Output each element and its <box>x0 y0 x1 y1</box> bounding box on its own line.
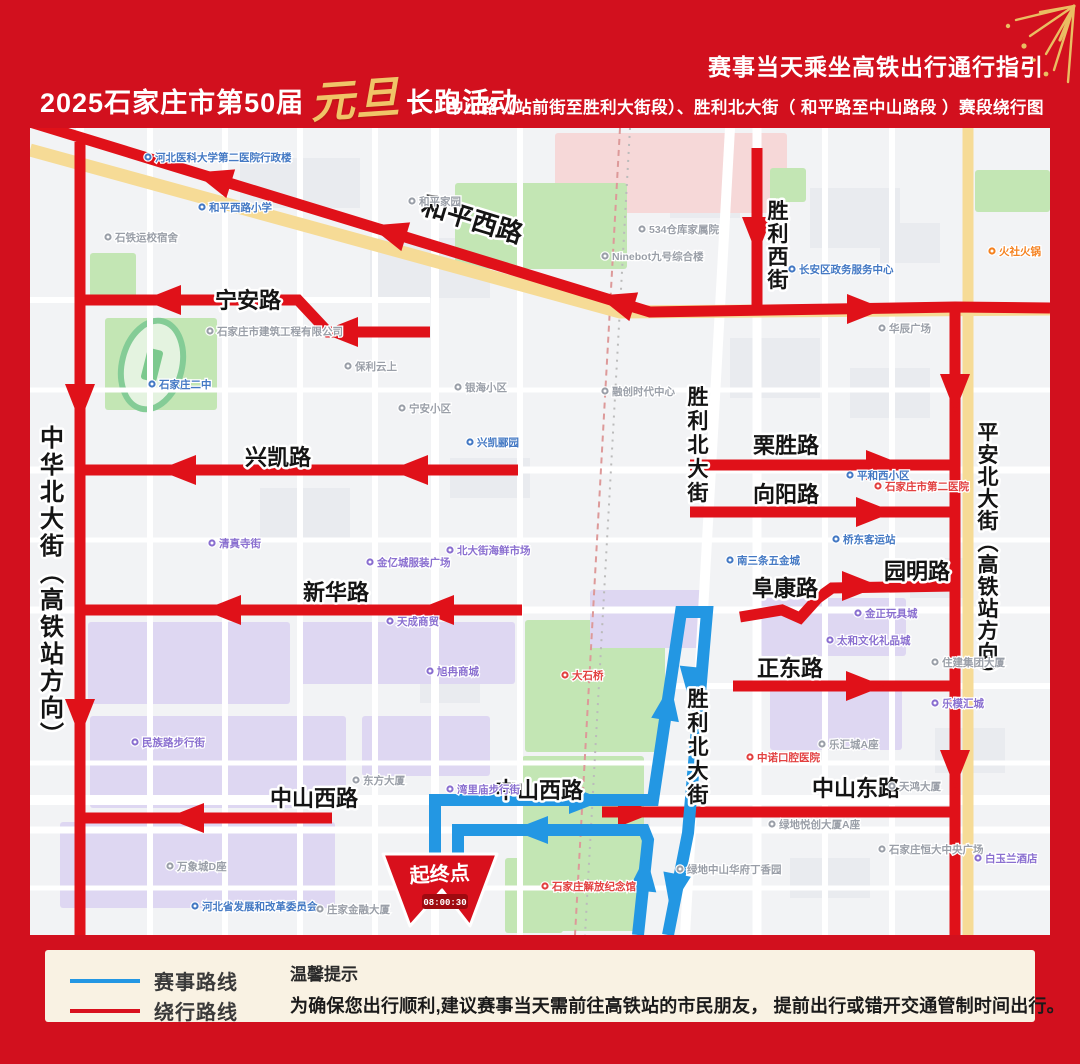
poi-pin-dot <box>209 330 212 333</box>
poi: 庄家金融大厦 <box>316 903 391 916</box>
poi-label: 火社火锅 <box>999 245 1041 258</box>
poi: 长安区政务服务中心 <box>788 263 894 276</box>
poi-pin-dot <box>201 206 204 209</box>
street-label: 胜利西街 <box>767 200 789 292</box>
poi-pin-dot <box>849 474 852 477</box>
poi-label: 天鸿大厦 <box>899 780 941 793</box>
guide-subtitle: 中山路（站前街至胜利大街段）、胜利北大街（ 和平路至中山路段 ）赛段绕行图 <box>447 94 1044 118</box>
poi-pin-dot <box>829 639 832 642</box>
poi-label: 金正玩具城 <box>864 607 918 620</box>
poi-pin-dot <box>877 485 880 488</box>
poi: 绿地中山华府丁香园 <box>676 863 782 876</box>
poi-label: 长安区政务服务中心 <box>799 263 894 276</box>
poi: 绿地悦创大厦A座 <box>768 818 861 831</box>
poi-pin-dot <box>749 756 752 759</box>
poi-label: 石家庄二中 <box>158 378 212 391</box>
poi: 河北省发展和改革委员会 <box>191 900 318 913</box>
legend-detour-row: 绕行路线 <box>70 996 238 1025</box>
street-label: 向阳路 <box>753 482 820 507</box>
poi-label: 湾里庙步行街 <box>457 783 520 796</box>
poi-pin-dot <box>679 868 682 871</box>
street-label: 宁安路 <box>215 288 282 313</box>
street-label: 平安北大街︵高铁站方向︶ <box>977 422 999 687</box>
detour-route-label: 绕行路线 <box>154 996 238 1025</box>
city-block <box>260 488 350 538</box>
poi-label: 石铁运校宿舍 <box>114 231 178 244</box>
poi-pin-dot <box>729 559 732 562</box>
poi-label: 绿地悦创大厦A座 <box>779 818 861 831</box>
route-map: 和平西路胜利西街宁安路兴凯路中华北大街︵高铁站方向︶新华路中山西路中山西路胜利北… <box>30 128 1050 935</box>
zone-mall <box>300 622 515 684</box>
tip-title: 温馨提示 <box>290 960 358 985</box>
poi-pin-dot <box>641 228 644 231</box>
zone-mall <box>362 716 490 776</box>
poi-pin-dot <box>604 390 607 393</box>
poi-pin-dot <box>147 156 150 159</box>
poi-label: 石家庄市建筑工程有限公司 <box>216 325 343 338</box>
poi-pin-dot <box>934 661 937 664</box>
zone-park <box>975 170 1050 212</box>
poi-label: 河北省发展和改革委员会 <box>202 900 318 913</box>
poi: 中诺口腔医院 <box>746 751 821 764</box>
poi-label: 乐模汇城 <box>942 697 984 710</box>
poi-pin-dot <box>411 200 414 203</box>
street-label: 园明路 <box>884 559 951 584</box>
poi-pin-dot <box>319 908 322 911</box>
poi: 和平西路小学 <box>198 201 273 214</box>
poi-pin-dot <box>449 788 452 791</box>
poi: 石家庄恒大中央广场 <box>878 843 984 856</box>
poi-label: 绿地中山华府丁香园 <box>687 863 782 876</box>
race-route-line-icon <box>70 979 140 983</box>
poi-label: 东方大厦 <box>363 774 405 787</box>
street-label: 阜康路 <box>752 576 819 601</box>
poi-pin-dot <box>369 561 372 564</box>
poi: 南三条五金城 <box>726 554 801 567</box>
poi: 石家庄解放纪念馆 <box>541 880 637 893</box>
tip-text: 为确保您出行顺利,建议赛事当天需前往高铁站的市民朋友， 提前出行或错开交通管制时… <box>290 992 1065 1018</box>
start-finish-label: 起终点 <box>408 860 470 887</box>
poi-label: 乐汇城A座 <box>829 738 879 751</box>
poi: Ninebot九号综合楼 <box>601 250 704 263</box>
poi-label: 大石桥 <box>572 669 604 682</box>
poi-pin-dot <box>401 407 404 410</box>
race-route-label: 赛事路线 <box>154 966 238 995</box>
poi-pin-dot <box>604 255 607 258</box>
poi-label: 融创时代中心 <box>612 385 675 398</box>
poi-pin-dot <box>449 549 452 552</box>
poi: 住建集团大厦 <box>931 656 1006 669</box>
poi-label: 河北医科大学第二医院行政楼 <box>155 151 292 164</box>
poi-label: 石家庄解放纪念馆 <box>551 880 636 893</box>
poi-pin-dot <box>469 441 472 444</box>
legend: 赛事路线 绕行路线 温馨提示 为确保您出行顺利,建议赛事当天需前往高铁站的市民朋… <box>45 950 1035 1022</box>
poi-label: 保利云上 <box>354 360 397 373</box>
street-label: 新华路 <box>303 580 370 605</box>
poi-pin-dot <box>169 865 172 868</box>
poi: 北大街海鲜市场 <box>446 544 531 557</box>
zone-park <box>90 253 136 299</box>
poi-label: 民族路步行街 <box>142 736 205 749</box>
poi-pin-dot <box>107 236 110 239</box>
event-title-prefix: 2025石家庄市第50届 <box>40 81 304 120</box>
poi: 湾里庙步行街 <box>446 783 521 796</box>
map: 和平西路胜利西街宁安路兴凯路中华北大街︵高铁站方向︶新华路中山西路中山西路胜利北… <box>30 128 1050 935</box>
poi-label: 和平西路小学 <box>208 201 272 214</box>
poi-label: 和平家园 <box>418 195 461 208</box>
poi-pin-dot <box>134 741 137 744</box>
poi-label: 住建集团大厦 <box>942 656 1005 669</box>
poi-pin-dot <box>835 538 838 541</box>
poi-label: 银海小区 <box>465 381 507 394</box>
poi-pin-dot <box>857 612 860 615</box>
poi-pin-dot <box>347 365 350 368</box>
poi-label: 石家庄恒大中央广场 <box>888 843 984 856</box>
poi-pin-dot <box>934 702 937 705</box>
poi-pin-dot <box>194 905 197 908</box>
poi-label: 太和文化礼品城 <box>836 634 911 647</box>
zone-park <box>770 168 806 202</box>
poi-pin-dot <box>791 268 794 271</box>
poi-pin-dot <box>355 779 358 782</box>
poi-pin-dot <box>429 670 432 673</box>
poi-pin-dot <box>564 674 567 677</box>
poi-label: 华辰广场 <box>889 322 931 335</box>
poi-pin-dot <box>544 885 547 888</box>
poi-label: 北大街海鲜市场 <box>457 544 531 557</box>
poi-pin-dot <box>881 848 884 851</box>
poi-label: 万象城D座 <box>176 860 227 873</box>
poi: 融创时代中心 <box>601 385 676 398</box>
poi-label: 天成商贸 <box>397 615 439 628</box>
poster: 2025石家庄市第50届 元旦 长跑活动 赛事当天乘坐高铁出行通行指引 中山路（… <box>0 0 1080 1064</box>
fireworks-icon <box>950 0 1080 90</box>
poi: 534仓库家属院 <box>638 223 720 236</box>
legend-race-row: 赛事路线 <box>70 966 238 995</box>
poi-label: 金亿城服装广场 <box>376 556 451 569</box>
poi-pin-dot <box>457 386 460 389</box>
poi-label: 白玉兰酒店 <box>985 852 1038 865</box>
poi-label: 平和西小区 <box>857 469 910 482</box>
poi-label: 清真寺街 <box>219 537 261 550</box>
start-time-text: 08:00:30 <box>423 898 466 908</box>
poi-pin-dot <box>991 250 994 253</box>
poi: 河北医科大学第二医院行政楼 <box>144 151 292 164</box>
poi-label: Ninebot九号综合楼 <box>612 250 704 263</box>
poi-pin-dot <box>881 327 884 330</box>
poi-pin-dot <box>771 823 774 826</box>
new-year-calligraphy: 元旦 <box>308 61 402 131</box>
poi-label: 南三条五金城 <box>737 554 800 567</box>
poi: 石家庄市建筑工程有限公司 <box>206 325 343 338</box>
street-label: 正东路 <box>757 656 824 681</box>
street-label: 栗胜路 <box>753 433 820 458</box>
poi-pin-dot <box>151 383 154 386</box>
poi-label: 桥东客运站 <box>843 533 896 546</box>
street-label: 中山东路 <box>812 776 901 801</box>
poi-pin-dot <box>977 857 980 860</box>
street-label: 中华北大街︵高铁站方向︶ <box>39 425 64 749</box>
poi-label: 旭冉商城 <box>436 665 479 678</box>
zone-mall <box>88 622 290 704</box>
poi: 太和文化礼品城 <box>826 634 911 647</box>
street-label: 中山西路 <box>270 786 359 811</box>
poi-label: 中诺口腔医院 <box>757 751 820 764</box>
poi-pin-dot <box>389 620 392 623</box>
poi-pin-dot <box>891 785 894 788</box>
poi-pin-dot <box>821 743 824 746</box>
poi-pin-dot <box>211 542 214 545</box>
street-label: 胜利北大街 <box>687 386 709 505</box>
detour-route-line-icon <box>70 1009 140 1013</box>
poi: 金亿城服装广场 <box>366 556 451 569</box>
poi-label: 534仓库家属院 <box>649 223 720 236</box>
zone-park <box>505 858 563 933</box>
header: 2025石家庄市第50届 元旦 长跑活动 赛事当天乘坐高铁出行通行指引 中山路（… <box>0 0 1080 128</box>
poi-label: 宁安小区 <box>409 402 451 415</box>
street-label: 兴凯路 <box>245 445 312 470</box>
poi-label: 兴凯郦园 <box>477 436 519 449</box>
city-block <box>790 858 870 898</box>
poi: 石铁运校宿舍 <box>104 231 179 244</box>
poi: 民族路步行街 <box>131 736 206 749</box>
street-label: 胜利北大街 <box>687 688 709 807</box>
poi-label: 庄家金融大厦 <box>327 903 390 916</box>
